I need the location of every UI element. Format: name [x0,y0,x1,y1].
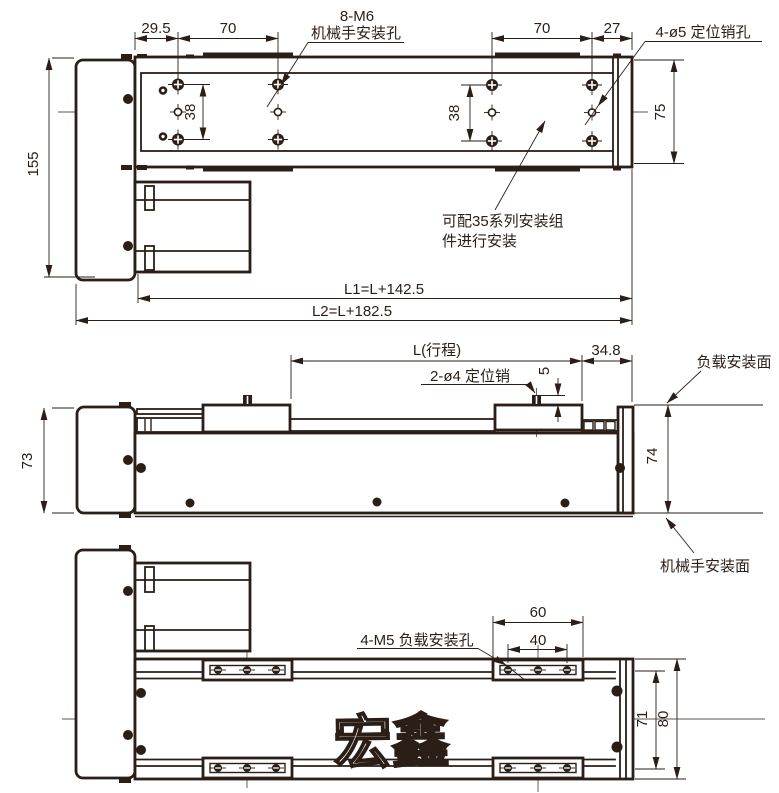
dim-80-label: 80 [655,711,672,728]
dim-70-left: 70 [178,20,278,39]
dim-70-right: 70 [492,20,592,39]
dim-27-label: 27 [604,20,621,37]
screw-dot [123,94,133,104]
dim-155-label: 155 [25,151,42,176]
m6-sub-label: 机械手安装孔 [311,25,401,42]
dim-70-right-label: 70 [534,20,551,37]
dim-74-label: 74 [644,448,661,465]
bottom-view: 60 40 4-M5 负载安装孔 71 80 宏鑫 [62,545,765,792]
dim-74: 74 [634,405,763,513]
motor-housing-top-view [135,182,250,272]
dim-38-right-label: 38 [446,105,463,122]
dim-34-8: 34.8 [582,342,632,402]
dim-60-label: 60 [530,604,547,621]
load-surface-label: 负载安装面 [696,354,771,371]
dim-40-label: 40 [530,632,547,649]
note-line1: 可配35系列安装组 [442,213,564,230]
dim-l2-label: L2=L+182.5 [312,303,392,320]
dim-73: 73 [19,408,74,513]
robot-surface-label: 机械手安装面 [660,558,750,575]
motor-flange-bottom-view [135,563,250,651]
dim-29-5-label: 29.5 [141,20,170,37]
top-view: 29.5 70 70 27 8-M6 机械手安装孔 4-ø5 定位销孔 [25,8,762,325]
dim-l1-label: L1=L+142.5 [344,281,424,298]
dim-27: 27 [592,20,632,39]
dim-71-label: 71 [634,711,651,728]
carriage-left-position [203,395,290,432]
screw-dot [123,241,133,251]
drawing-page: 29.5 70 70 27 8-M6 机械手安装孔 4-ø5 定位销孔 [0,0,779,793]
m6-label: 8-M6 [340,8,374,25]
callout-dowel-pins: 2-ø4 定位销 [421,368,535,393]
end-cap-bottom-view [76,545,135,783]
carriage-right-position [495,388,582,437]
callout-load-surface: 负载安装面 [667,354,772,403]
dim-75-label: 75 [652,104,669,121]
brand-logo-text: 宏鑫 [333,709,450,776]
dim-70-left-label: 70 [220,20,237,37]
dowel-pins-label: 2-ø4 定位销 [430,368,510,385]
side-view: L(行程) 34.8 2-ø4 定位销 5 73 [19,342,772,575]
drawing-canvas: 29.5 70 70 27 8-M6 机械手安装孔 4-ø5 定位销孔 [0,0,779,793]
pin-holes-label: 4-ø5 定位销孔 [655,24,750,41]
load-holes-label: 4-M5 负载安装孔 [360,632,473,649]
dim-5-label: 5 [536,367,553,375]
callout-robot-surface: 机械手安装面 [660,518,750,575]
dim-38-left-label: 38 [182,104,199,121]
note-line2: 件进行安装 [442,233,517,250]
dim-stroke-label: L(行程) [413,342,461,359]
dim-34-8-label: 34.8 [591,342,620,359]
dim-73-label: 73 [19,453,36,470]
